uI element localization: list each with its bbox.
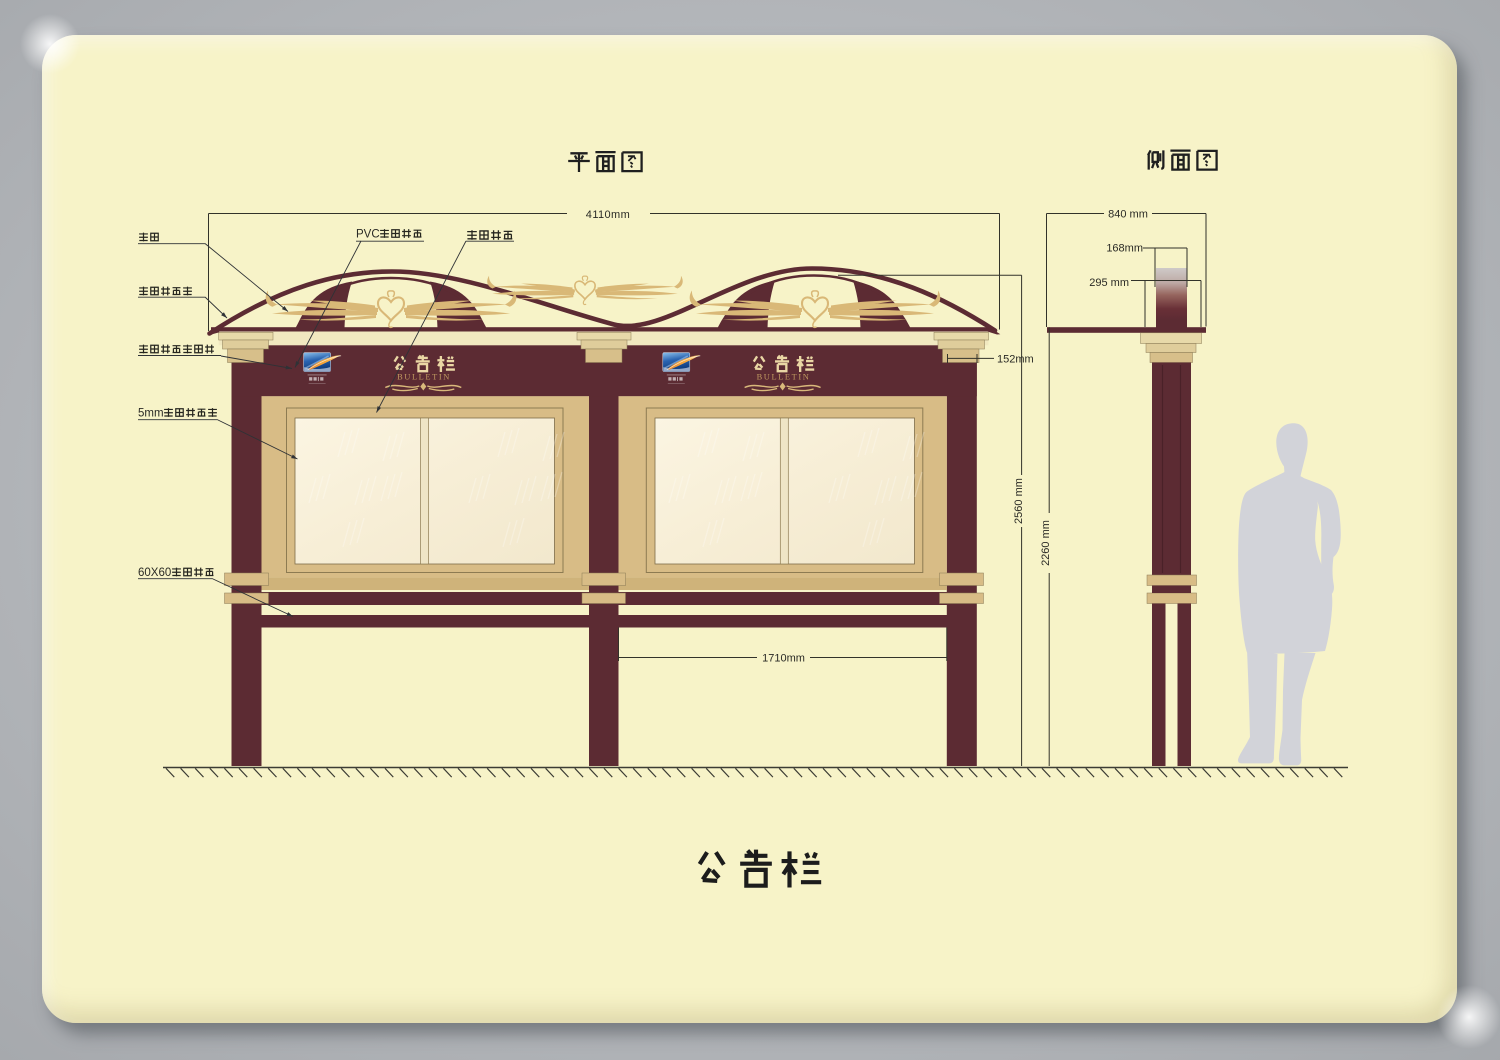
svg-text:2560 mm: 2560 mm — [1013, 478, 1025, 524]
svg-text:1710mm: 1710mm — [762, 653, 805, 665]
svg-text:60X60: 60X60 — [138, 567, 171, 579]
svg-text:2260 mm: 2260 mm — [1040, 520, 1052, 566]
svg-text:BULLETIN: BULLETIN — [757, 373, 811, 382]
svg-text:295 mm: 295 mm — [1089, 277, 1129, 289]
svg-text:4110mm: 4110mm — [586, 209, 630, 221]
svg-text:BULLETIN: BULLETIN — [397, 373, 451, 382]
svg-text:5mm: 5mm — [138, 408, 164, 420]
svg-text:152mm: 152mm — [997, 354, 1034, 366]
svg-text:168mm: 168mm — [1106, 243, 1143, 255]
svg-text:840 mm: 840 mm — [1108, 209, 1148, 221]
svg-text:PVC: PVC — [356, 229, 380, 241]
